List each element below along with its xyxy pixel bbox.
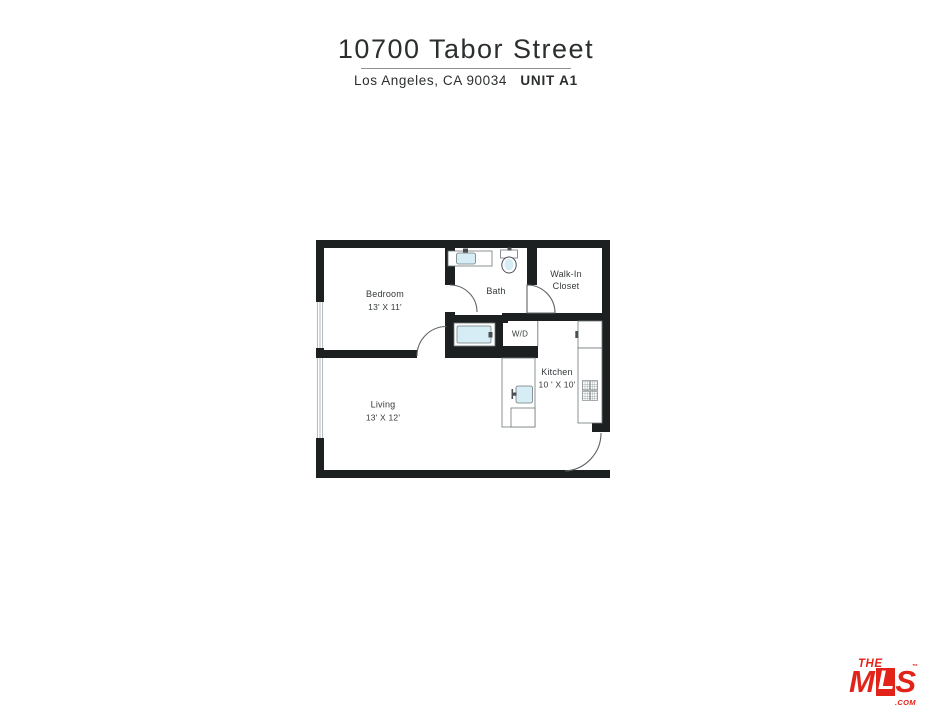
window-living-icon <box>317 358 322 438</box>
laundry-label: W/D <box>512 330 528 339</box>
bath-door-arc-icon <box>450 285 477 312</box>
wall-top <box>316 240 610 248</box>
themls-logo: THE M L S ™ .COM <box>849 657 921 713</box>
logo-letter-s: S <box>895 666 916 697</box>
wall-bath-closet <box>527 248 537 285</box>
floor-plan: Bedroom 13' X 11' Bath Walk-In Closet W/… <box>316 240 610 478</box>
entry-door-arc-icon <box>565 433 601 471</box>
burner-icon <box>583 391 590 401</box>
bath-label: Bath <box>486 286 505 296</box>
sink-faucet-icon <box>463 249 468 253</box>
burner-icon <box>591 381 598 391</box>
bath-fixtures <box>448 248 518 274</box>
wall-below-tub-wd <box>445 346 538 358</box>
city-state-zip: Los Angeles, CA 90034 <box>354 73 507 88</box>
title-divider <box>361 68 571 69</box>
bathtub-faucet-icon <box>489 332 493 338</box>
living-label: Living <box>371 400 396 410</box>
refrigerator-handle-icon <box>575 331 578 338</box>
wall-left-mid <box>316 348 324 358</box>
logo-letter-m: M <box>849 666 875 697</box>
burner-icon <box>591 391 598 401</box>
window-bedroom-icon <box>317 302 322 348</box>
logo-trademark-symbol: ™ <box>912 664 918 670</box>
wall-tub-top <box>445 315 503 323</box>
burner-icon <box>583 381 590 391</box>
kitchen-cabinet-icon <box>511 408 535 427</box>
bedroom-label: Bedroom <box>366 289 404 299</box>
living-dims: 13' X 12' <box>366 413 401 423</box>
wall-right-upper <box>602 240 610 432</box>
bathtub-icon <box>454 323 495 346</box>
wall-left-top <box>316 240 324 302</box>
bedroom-dims: 13' X 11' <box>368 302 402 312</box>
closet-door-arc-icon <box>527 285 555 313</box>
logo-mls-text: M L S <box>849 666 916 697</box>
refrigerator-icon <box>578 321 602 348</box>
unit-label: UNIT A1 <box>520 73 578 88</box>
bedroom-door-arc-icon <box>417 327 447 357</box>
kitchen-faucet-icon <box>512 393 517 396</box>
wall-left-bottom <box>316 438 324 478</box>
bathtub-basin-icon <box>457 326 491 343</box>
closet-label-line2: Closet <box>553 281 580 291</box>
kitchen-counter-right-icon <box>578 348 602 423</box>
kitchen-label: Kitchen <box>541 367 572 377</box>
wall-bedroom-living <box>324 350 417 358</box>
bath-sink-icon <box>457 253 476 264</box>
logo-com-text: .COM <box>895 698 916 707</box>
wall-below-closet <box>502 313 602 321</box>
kitchen-sink-icon <box>516 386 533 403</box>
closet-label-line1: Walk-In <box>550 269 582 279</box>
page-title: 10700 Tabor Street <box>0 36 932 63</box>
toilet-valve-icon <box>508 248 512 251</box>
header: 10700 Tabor Street Los Angeles, CA 90034… <box>0 36 932 88</box>
logo-letter-l: L <box>876 668 896 696</box>
toilet-bowl-inner-icon <box>504 259 513 271</box>
subtitle: Los Angeles, CA 90034 UNIT A1 <box>0 73 932 88</box>
kitchen-dims: 10 ' X 10' <box>539 380 576 390</box>
